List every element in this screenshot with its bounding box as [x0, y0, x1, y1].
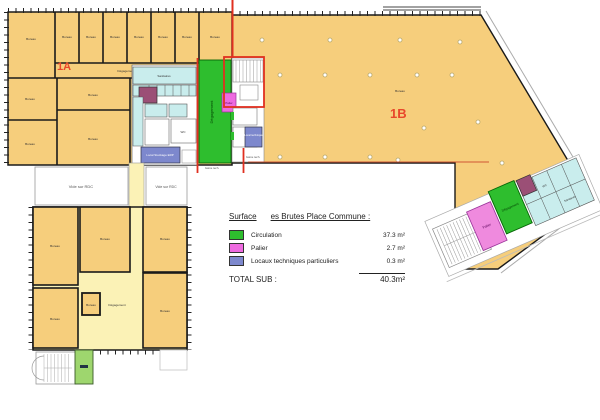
room-label: Bureau: [395, 89, 405, 93]
room-label: Bureau: [62, 35, 72, 39]
room-label: Bureau: [88, 93, 98, 97]
room-label: Bureau: [110, 35, 120, 39]
legend-row-palier: Palier 2.7 m²: [229, 243, 405, 253]
legend-value: 37.3 m²: [365, 232, 405, 239]
palier-swatch: [229, 243, 244, 253]
floor-plan-canvas: Bureau Bureau Bureau Bureau Bur: [0, 0, 600, 420]
room-label: Gaine tech.: [246, 155, 261, 159]
legend-label: Locaux techniques particuliers: [251, 258, 365, 265]
legend-title-right: es Brutes Place Commune :: [271, 212, 371, 221]
link-corridor: [129, 163, 144, 210]
room-label: Bureau: [88, 137, 98, 141]
room-label: Bureau: [25, 97, 35, 101]
door-mark: [231, 132, 234, 140]
room-label: Bureau: [134, 35, 144, 39]
local-technique-room: [245, 127, 262, 147]
door-mark: [231, 112, 234, 120]
room-label: WC: [181, 130, 187, 134]
room-label: Sanitaires: [157, 74, 171, 78]
zone-label-1b: 1B: [390, 106, 407, 121]
room-label: Bureau: [160, 309, 170, 313]
zone-label-1a: 1A: [57, 61, 71, 73]
room-label: Bureau: [26, 37, 36, 41]
room-label: Bureau: [210, 35, 220, 39]
corridor-label: Dégagement: [209, 100, 214, 124]
legend-value: 2.7 m²: [365, 245, 405, 252]
room-label: Bureau: [160, 237, 170, 241]
room-label: Bureau: [158, 35, 168, 39]
room-label: Gaine tech.: [205, 166, 220, 170]
room-label: Bureau: [50, 244, 60, 248]
room-label: Bureau: [182, 35, 192, 39]
room-label: Vide sur RDC: [155, 185, 177, 189]
legend-row-locaux: Locaux techniques particuliers 0.3 m²: [229, 256, 405, 266]
room-label: Bureau: [25, 142, 35, 146]
room-label: Bureau: [86, 35, 96, 39]
legend-value: 0.3 m²: [365, 258, 405, 265]
legend-title-left: Surface: [229, 212, 257, 221]
room-label: Bureau: [86, 303, 96, 307]
room-label: Palier: [225, 101, 232, 105]
total-value: 40.3m²: [359, 273, 405, 284]
label-mark: [80, 365, 88, 368]
circulation-swatch: [229, 230, 244, 240]
room-label: Local technique: [244, 133, 263, 137]
bottom-left-block: Bureau Bureau Bureau Bureau Bureau Burea…: [31, 207, 189, 384]
room-label: Bureau: [50, 317, 60, 321]
legend-total: TOTAL SUB : 40.3m²: [229, 273, 405, 284]
legend-label: Circulation: [251, 232, 365, 239]
room-label: Vide sur RDC: [69, 184, 93, 189]
legend-row-circulation: Circulation 37.3 m²: [229, 230, 405, 240]
floor-plan-page: Bureau Bureau Bureau Bureau Bur: [0, 0, 600, 420]
locaux-swatch: [229, 256, 244, 266]
legend: Surface es Brutes Place Commune : Circul…: [229, 212, 405, 284]
room-label: Local Stockage ERP: [146, 153, 174, 157]
corridor-label: Dégagement: [108, 303, 125, 307]
legend-label: Palier: [251, 245, 365, 252]
room-label: Bureau: [100, 237, 110, 241]
total-label: TOTAL SUB :: [229, 275, 359, 284]
legend-title: Surface es Brutes Place Commune :: [229, 212, 405, 221]
